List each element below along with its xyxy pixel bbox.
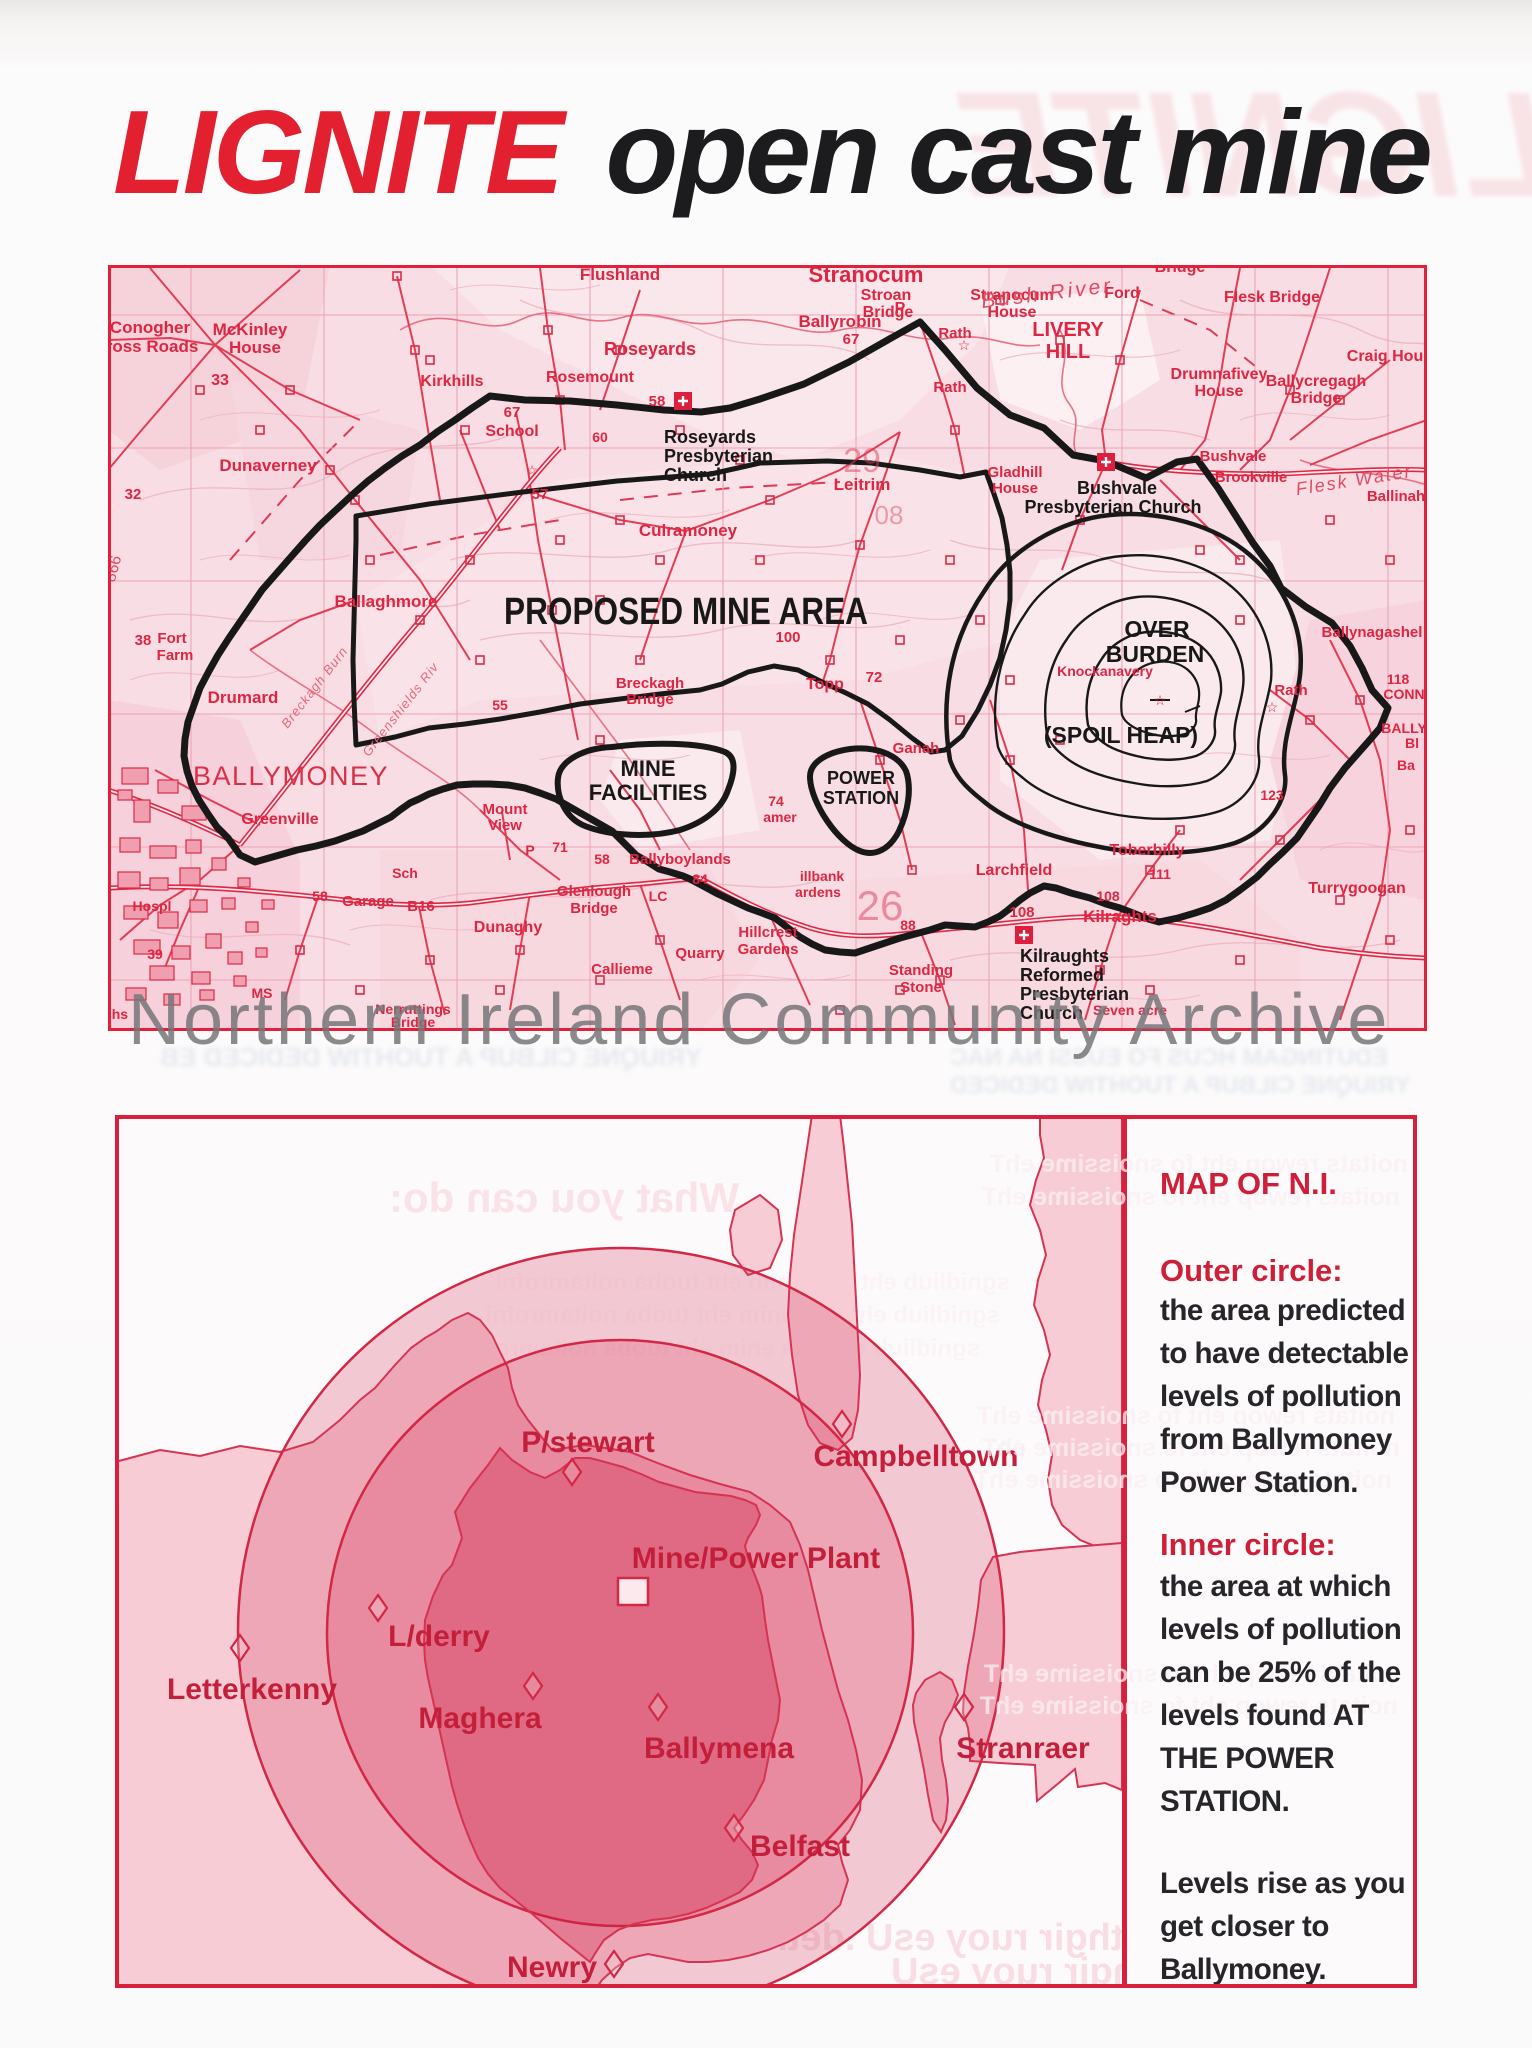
- svg-text:chs: chs: [108, 1006, 128, 1022]
- svg-text:38: 38: [135, 632, 152, 649]
- svg-text:Bushvale: Bushvale: [1077, 478, 1157, 498]
- svg-text:Culramoney: Culramoney: [639, 521, 738, 540]
- svg-text:House: House: [992, 480, 1038, 497]
- svg-text:Bridge: Bridge: [570, 900, 618, 917]
- svg-text:32: 32: [125, 486, 142, 503]
- svg-text:Topp: Topp: [806, 676, 844, 693]
- svg-text:84: 84: [692, 871, 708, 887]
- svg-text:Hillcrest: Hillcrest: [738, 924, 797, 941]
- svg-text:Maghera: Maghera: [418, 1702, 542, 1735]
- svg-text:Ballymoney.: Ballymoney.: [1160, 1953, 1326, 1986]
- svg-text:Drumnafivey: Drumnafivey: [1171, 366, 1268, 383]
- svg-text:Newry: Newry: [507, 1951, 597, 1984]
- svg-text:Ballyboylands: Ballyboylands: [629, 851, 731, 868]
- svg-text:the area at which: the area at which: [1160, 1570, 1391, 1603]
- svg-text:levels found AT: levels found AT: [1160, 1699, 1369, 1732]
- svg-text:Letterkenny: Letterkenny: [167, 1673, 337, 1706]
- svg-text:MINE: MINE: [621, 756, 676, 781]
- svg-text:Larchfield: Larchfield: [976, 862, 1052, 879]
- svg-text:Bridge: Bridge: [626, 691, 674, 708]
- svg-text:Kilraughts: Kilraughts: [1020, 946, 1109, 966]
- svg-text:Ganah: Ganah: [893, 740, 940, 757]
- svg-text:Ballaghmore: Ballaghmore: [335, 592, 438, 611]
- svg-text:ardens: ardens: [795, 884, 841, 900]
- svg-text:Greenville: Greenville: [241, 811, 318, 828]
- svg-text:House: House: [229, 338, 281, 357]
- svg-text:CONN: CONN: [1383, 686, 1424, 702]
- svg-text:Glenlough: Glenlough: [557, 883, 631, 900]
- svg-text:Conogher: Conogher: [110, 318, 191, 337]
- svg-text:STATION: STATION: [823, 788, 899, 808]
- svg-text:Ballyrobin: Ballyrobin: [798, 312, 881, 331]
- svg-text:MAP OF N.I.: MAP OF N.I.: [1160, 1166, 1337, 1201]
- svg-text:Kirkhills: Kirkhills: [420, 373, 483, 390]
- svg-text:Farm: Farm: [157, 647, 194, 664]
- svg-text:the area predicted: the area predicted: [1160, 1294, 1405, 1327]
- svg-text:08: 08: [875, 500, 904, 530]
- svg-text:Sch: Sch: [392, 865, 418, 881]
- svg-text:67: 67: [843, 331, 860, 348]
- svg-text:Ballymena: Ballymena: [644, 1732, 794, 1765]
- svg-text:60: 60: [592, 429, 608, 445]
- svg-text:McKinley: McKinley: [213, 320, 288, 339]
- svg-text:26: 26: [857, 882, 904, 929]
- svg-text:FACILITIES: FACILITIES: [589, 780, 708, 805]
- svg-text:123: 123: [1260, 787, 1284, 803]
- svg-text:BALLYMONEY: BALLYMONEY: [193, 761, 389, 791]
- svg-text:Bushvale: Bushvale: [1200, 448, 1267, 465]
- svg-text:Turrygoogan: Turrygoogan: [1308, 880, 1405, 897]
- svg-text:Roseyards: Roseyards: [604, 339, 696, 359]
- svg-text:Knockanavery: Knockanavery: [1057, 663, 1153, 679]
- svg-text:☆: ☆: [1266, 699, 1279, 715]
- svg-text:72: 72: [866, 669, 883, 686]
- svg-text:33: 33: [211, 372, 229, 389]
- svg-text:Ballynagashel: Ballynagashel: [1322, 624, 1423, 641]
- svg-text:HILL: HILL: [1046, 341, 1090, 363]
- svg-text:Bl: Bl: [1405, 735, 1419, 751]
- svg-text:Ba: Ba: [1397, 757, 1415, 773]
- svg-text:67: 67: [504, 404, 521, 421]
- svg-text:BALLY: BALLY: [1381, 720, 1427, 736]
- svg-text:to have detectable: to have detectable: [1160, 1337, 1408, 1370]
- svg-text:Rath: Rath: [1274, 682, 1307, 699]
- svg-text:Fort: Fort: [157, 630, 186, 647]
- svg-text:B16: B16: [407, 898, 435, 915]
- svg-text:Flesk Bridge: Flesk Bridge: [1224, 289, 1320, 306]
- svg-text:Craig Hou: Craig Hou: [1347, 348, 1423, 365]
- svg-text:levels of pollution: levels of pollution: [1160, 1380, 1401, 1413]
- svg-text:ross Roads: ross Roads: [108, 337, 198, 356]
- svg-text:View: View: [488, 817, 522, 834]
- svg-text:Rosemount: Rosemount: [546, 369, 635, 386]
- svg-text:PROPOSED MINE AREA: PROPOSED MINE AREA: [504, 591, 868, 633]
- svg-text:Callieme: Callieme: [591, 961, 653, 978]
- svg-text:Toberbilly: Toberbilly: [1109, 842, 1184, 859]
- svg-text:Bridge: Bridge: [1291, 390, 1342, 407]
- svg-text:Presbyterian: Presbyterian: [664, 446, 773, 466]
- svg-text:71: 71: [552, 839, 568, 855]
- svg-text:LC: LC: [649, 888, 668, 904]
- svg-text:Dunaverney: Dunaverney: [219, 456, 317, 475]
- svg-text:Brookville: Brookville: [1215, 469, 1288, 486]
- svg-text:Levels rise as you: Levels rise as you: [1160, 1867, 1405, 1900]
- svg-text:Garage: Garage: [342, 893, 394, 910]
- svg-text:Dunaghy: Dunaghy: [474, 919, 543, 936]
- svg-text:111: 111: [1149, 866, 1171, 882]
- svg-text:Drumard: Drumard: [208, 688, 279, 707]
- svg-text:100: 100: [775, 629, 800, 646]
- svg-text:☆: ☆: [958, 337, 971, 353]
- svg-text:☆: ☆: [1154, 692, 1167, 708]
- svg-text:Presbyterian Church: Presbyterian Church: [1024, 497, 1201, 517]
- svg-text:House: House: [1195, 383, 1244, 400]
- svg-text:Church: Church: [664, 465, 727, 485]
- svg-text:(SPOIL HEAP): (SPOIL HEAP): [1044, 722, 1198, 748]
- svg-text:Gardens: Gardens: [738, 941, 799, 958]
- svg-text:STATION.: STATION.: [1160, 1785, 1289, 1818]
- svg-text:Mine/Power Plant: Mine/Power Plant: [632, 1542, 880, 1575]
- svg-text:P/stewart: P/stewart: [521, 1426, 654, 1459]
- svg-text:Ballinah: Ballinah: [1367, 488, 1425, 505]
- svg-text:118: 118: [1387, 671, 1410, 687]
- svg-text:55: 55: [492, 697, 508, 713]
- svg-text:illbank: illbank: [800, 868, 845, 884]
- svg-text:58: 58: [312, 888, 328, 904]
- svg-text:What you can do:: What you can do:: [389, 1174, 739, 1221]
- svg-text:58: 58: [649, 393, 666, 410]
- svg-text:L/derry: L/derry: [388, 1620, 490, 1653]
- svg-text:School: School: [485, 423, 538, 440]
- svg-text:108: 108: [1009, 904, 1034, 921]
- svg-text:LIVERY: LIVERY: [1032, 319, 1104, 341]
- svg-text:OVER: OVER: [1124, 616, 1190, 642]
- svg-text:Ballycregagh: Ballycregagh: [1266, 373, 1366, 390]
- svg-text:from Ballymoney: from Ballymoney: [1160, 1423, 1393, 1456]
- svg-text:Roseyards: Roseyards: [664, 427, 756, 447]
- svg-text:P: P: [525, 842, 534, 858]
- svg-text:amer: amer: [763, 809, 797, 825]
- svg-text:29: 29: [843, 442, 881, 480]
- svg-text:can be 25% of the: can be 25% of the: [1160, 1656, 1401, 1689]
- svg-text:Power Station.: Power Station.: [1160, 1466, 1358, 1499]
- svg-text:Stranocum: Stranocum: [809, 265, 924, 287]
- svg-text:POWER: POWER: [827, 768, 895, 788]
- svg-text:39: 39: [147, 946, 163, 962]
- svg-text:Quarry: Quarry: [675, 945, 725, 962]
- svg-text:Stranraer: Stranraer: [956, 1732, 1090, 1765]
- svg-text:Kilraghts: Kilraghts: [1083, 907, 1157, 926]
- svg-text:108: 108: [1096, 888, 1120, 904]
- svg-text:☆: ☆: [526, 462, 539, 478]
- svg-text:Standing: Standing: [889, 962, 953, 979]
- svg-text:THE POWER: THE POWER: [1160, 1742, 1334, 1775]
- svg-text:Inner circle:: Inner circle:: [1160, 1527, 1336, 1562]
- svg-text:P: P: [895, 300, 906, 317]
- svg-text:Gladhill: Gladhill: [987, 464, 1042, 481]
- svg-text:Mount: Mount: [483, 801, 528, 818]
- svg-text:get closer to: get closer to: [1160, 1910, 1329, 1943]
- svg-text:Hospl: Hospl: [133, 898, 172, 914]
- svg-text:levels of pollution: levels of pollution: [1160, 1613, 1401, 1646]
- svg-text:57: 57: [532, 486, 549, 503]
- svg-text:74: 74: [768, 793, 784, 809]
- svg-text:58: 58: [594, 851, 610, 867]
- svg-text:Belfast: Belfast: [750, 1830, 850, 1863]
- svg-text:Outer circle:: Outer circle:: [1160, 1253, 1343, 1288]
- svg-text:Breckagh: Breckagh: [616, 675, 684, 692]
- svg-text:Rath: Rath: [933, 379, 966, 396]
